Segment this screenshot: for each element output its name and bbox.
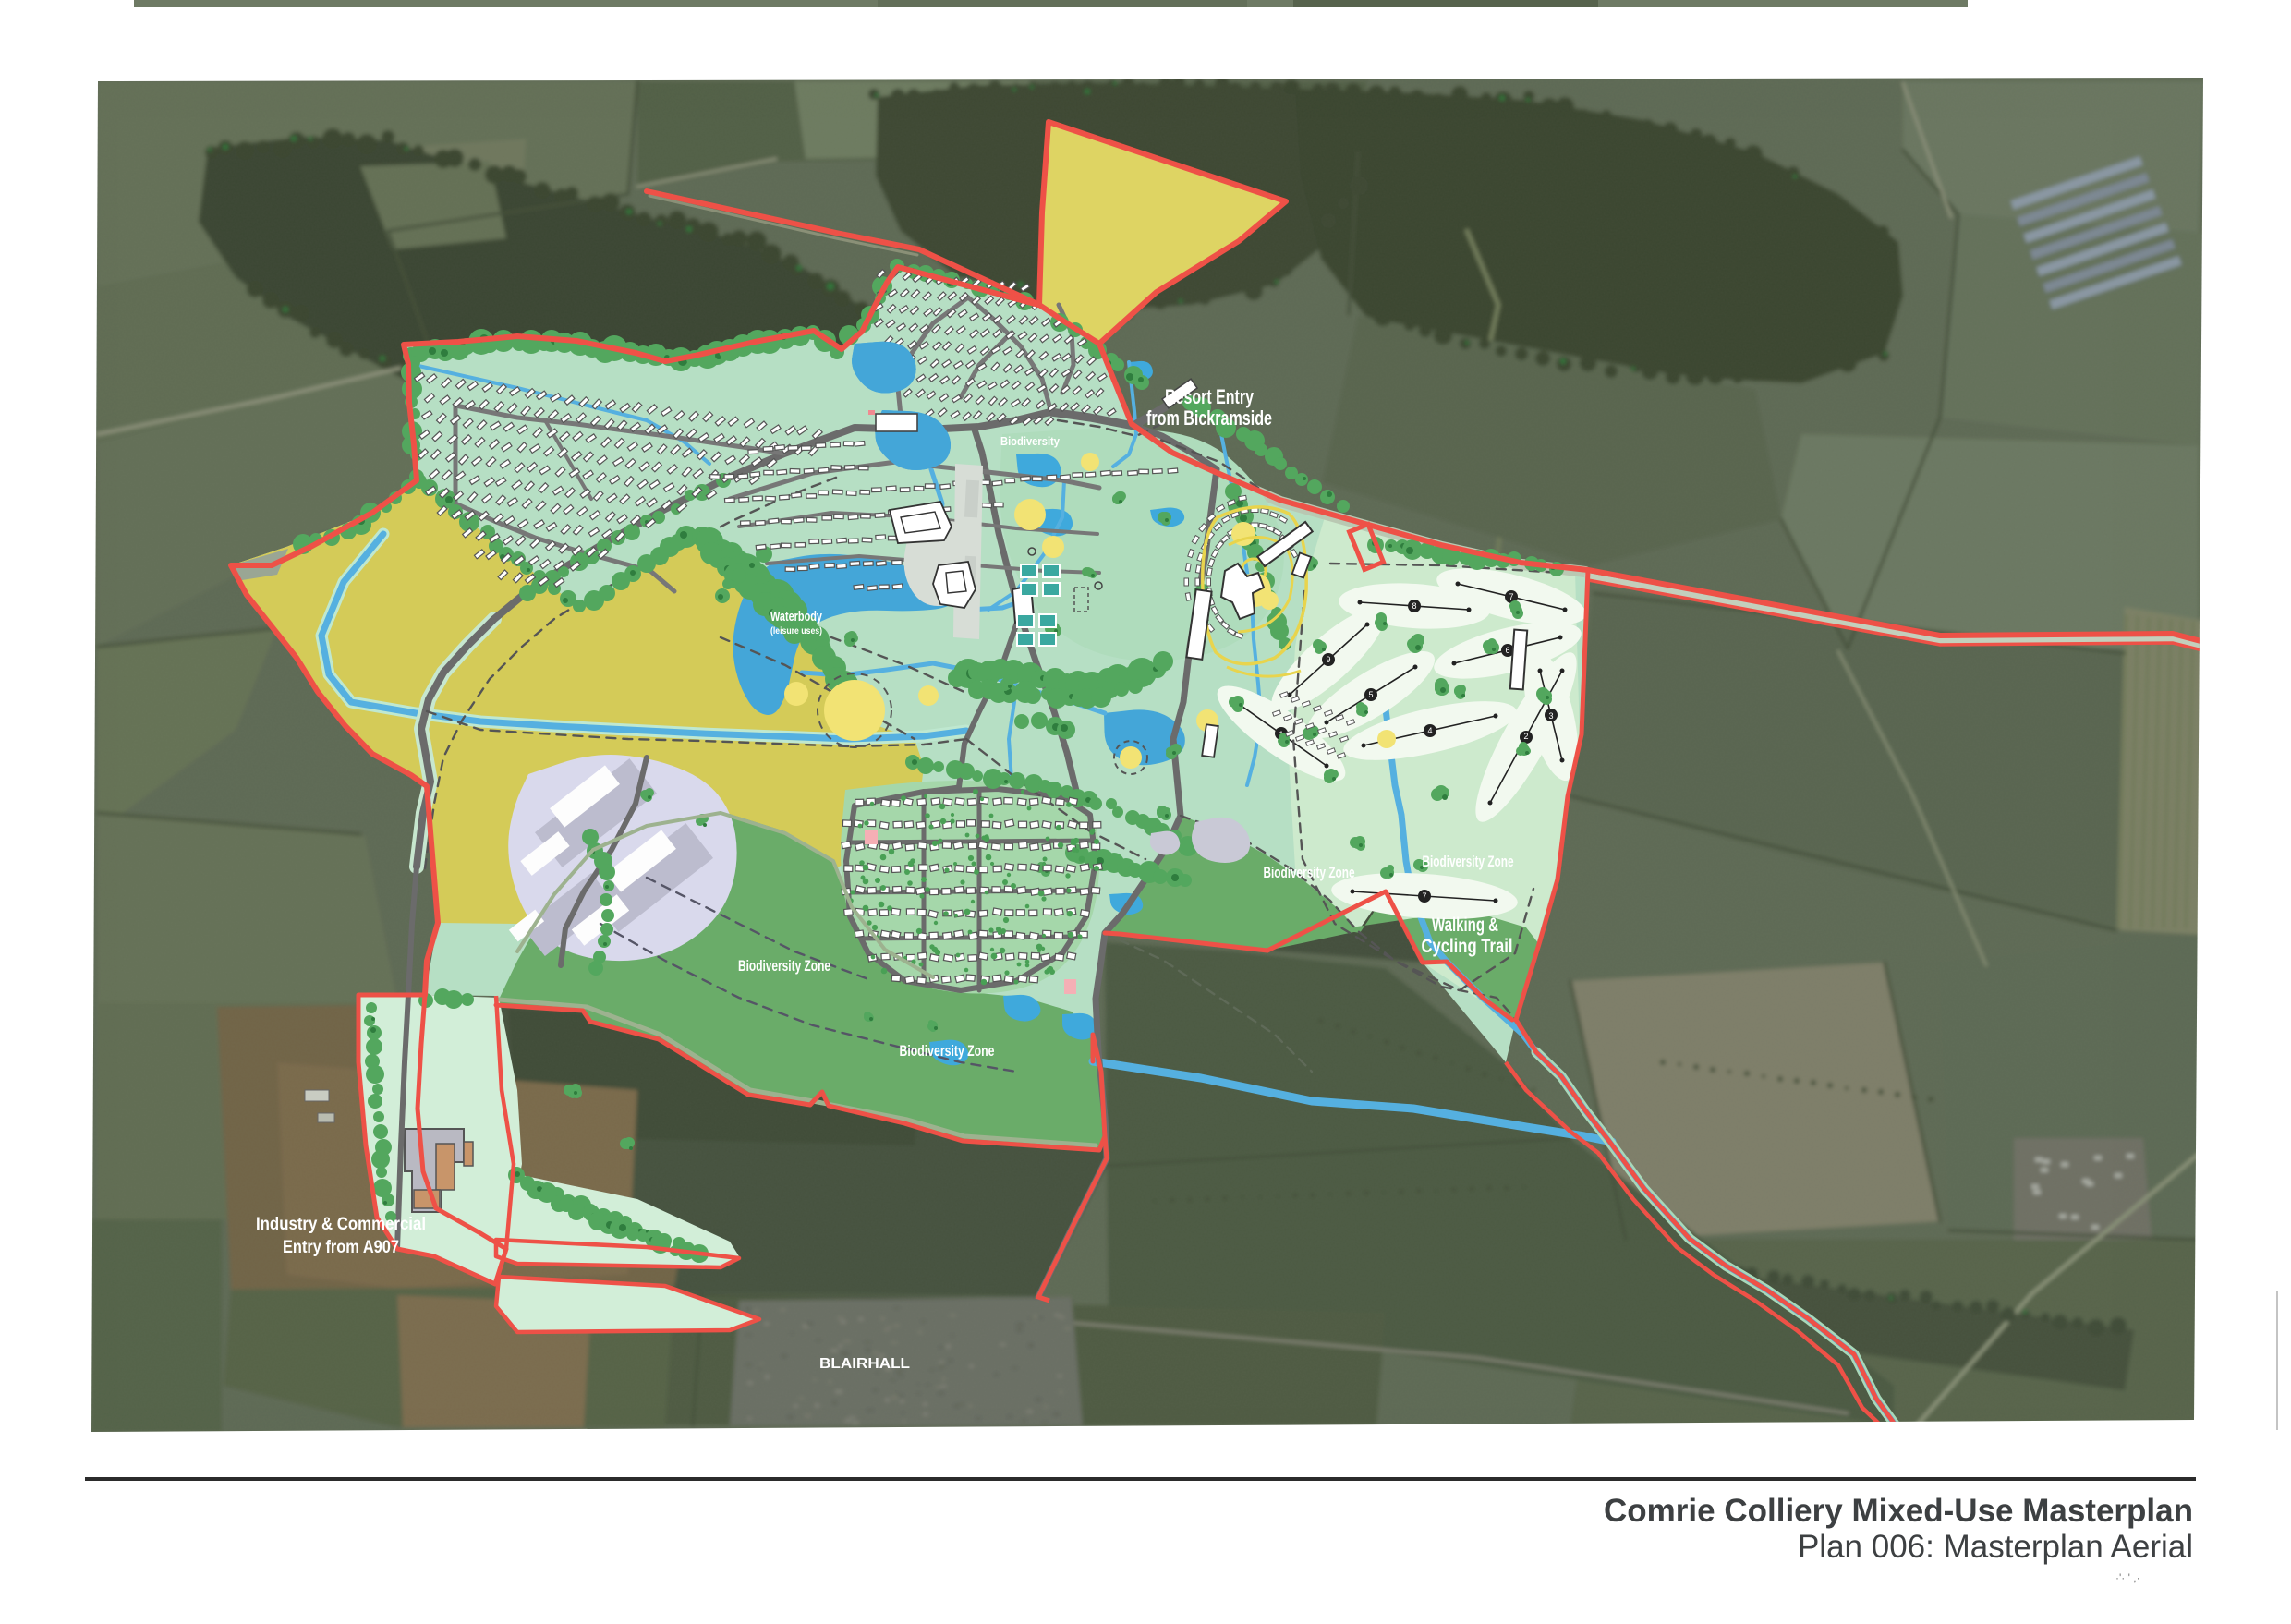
svg-text:Biodiversity Zone: Biodiversity Zone: [738, 957, 830, 975]
svg-text:2: 2: [1523, 732, 1528, 741]
svg-text:Comrie Colliery Mixed-Use Mast: Comrie Colliery Mixed-Use Masterplan: [1604, 1493, 2193, 1529]
svg-text:(leisure uses): (leisure uses): [770, 626, 822, 636]
svg-text:Cycling Trail: Cycling Trail: [1422, 936, 1513, 957]
svg-text:BLAIRHALL: BLAIRHALL: [819, 1356, 910, 1372]
svg-text:7: 7: [1509, 592, 1513, 601]
svg-text:Entry from A907: Entry from A907: [283, 1238, 399, 1257]
svg-text:Walking &: Walking &: [1432, 915, 1498, 936]
svg-text:Biodiversity Zone: Biodiversity Zone: [1423, 853, 1514, 870]
svg-text:3: 3: [1548, 711, 1553, 721]
svg-text:Industry & Commercial: Industry & Commercial: [256, 1215, 426, 1234]
svg-text:Resort Entry: Resort Entry: [1165, 385, 1255, 408]
svg-text:from Bickramside: from Bickramside: [1146, 406, 1272, 430]
svg-text:9: 9: [1326, 655, 1330, 664]
svg-text:7: 7: [1422, 891, 1426, 901]
svg-text:Biodiversity Zone: Biodiversity Zone: [1264, 864, 1355, 881]
svg-text:·'· ' ,·: ·'· ' ,·: [2115, 1571, 2140, 1584]
svg-text:5: 5: [1368, 690, 1373, 699]
svg-text:Biodiversity Zone: Biodiversity Zone: [900, 1042, 995, 1060]
svg-text:Biodiversity: Biodiversity: [1000, 434, 1061, 448]
svg-text:Waterbody: Waterbody: [770, 609, 822, 624]
svg-text:8: 8: [1412, 601, 1416, 611]
svg-text:4: 4: [1427, 726, 1432, 735]
svg-text:Plan 006: Masterplan Aerial: Plan 006: Masterplan Aerial: [1798, 1529, 2193, 1565]
svg-text:6: 6: [1505, 646, 1509, 655]
